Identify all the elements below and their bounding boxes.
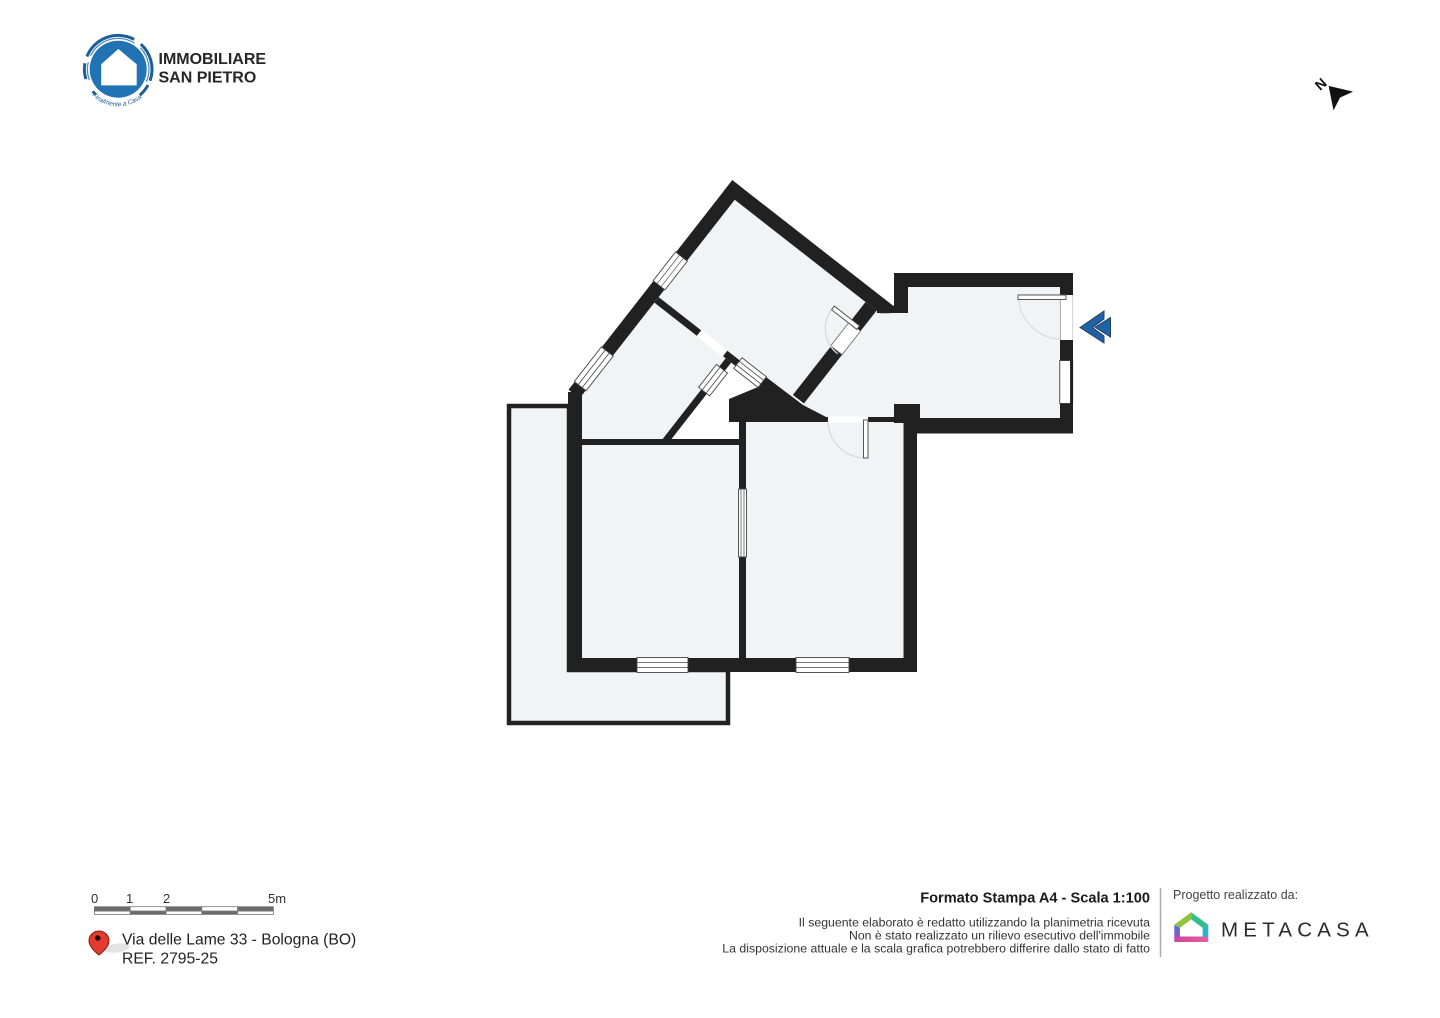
svg-text:Via delle Lame 33 - Bologna (B: Via delle Lame 33 - Bologna (BO) (122, 932, 356, 949)
svg-text:REF. 2795-25: REF. 2795-25 (122, 951, 218, 968)
svg-text:0: 0 (91, 891, 98, 906)
svg-text:SAN PIETRO: SAN PIETRO (159, 70, 257, 87)
svg-text:IMMOBILIARE: IMMOBILIARE (159, 51, 267, 68)
svg-text:1: 1 (126, 891, 133, 906)
svg-text:Formato Stampa A4 - Scala 1:10: Formato Stampa A4 - Scala 1:100 (920, 891, 1150, 907)
svg-text:METACASA: METACASA (1221, 919, 1374, 942)
svg-text:Non è stato realizzato un rili: Non è stato realizzato un rilievo esecut… (849, 929, 1150, 943)
svg-text:La disposizione attuale e la s: La disposizione attuale e la scala grafi… (722, 942, 1150, 956)
svg-text:Progetto realizzato da:: Progetto realizzato da: (1173, 888, 1298, 902)
svg-text:5m: 5m (268, 891, 286, 906)
svg-text:2: 2 (163, 891, 170, 906)
svg-text:Il seguente elaborato è redatt: Il seguente elaborato è redatto utilizza… (799, 916, 1151, 930)
